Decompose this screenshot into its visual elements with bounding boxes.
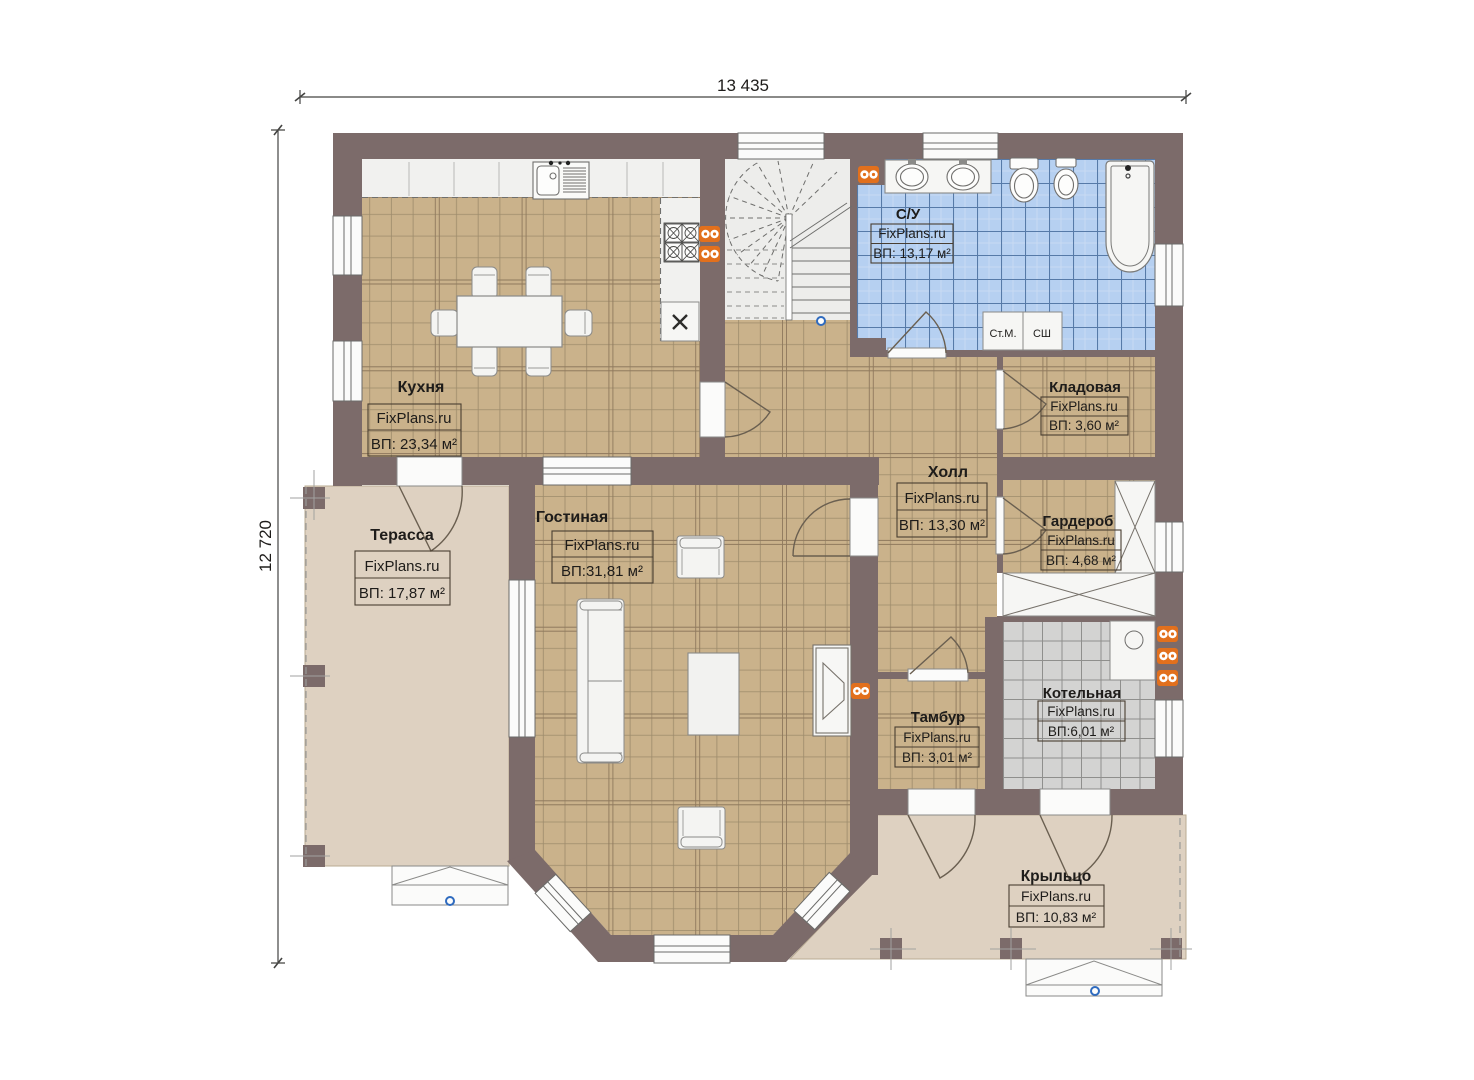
svg-text:ВП: 10,83 м²: ВП: 10,83 м² — [1016, 909, 1097, 925]
svg-text:Котельная: Котельная — [1043, 685, 1122, 702]
svg-text:Терасса: Терасса — [370, 527, 434, 544]
svg-text:FixPlans.ru: FixPlans.ru — [1021, 888, 1091, 904]
svg-text:Гостиная: Гостиная — [536, 509, 608, 526]
svg-text:13 435: 13 435 — [717, 76, 769, 95]
svg-text:12 720: 12 720 — [256, 520, 275, 572]
svg-text:Гардероб: Гардероб — [1043, 513, 1114, 530]
svg-text:Холл: Холл — [928, 464, 968, 481]
svg-text:FixPlans.ru: FixPlans.ru — [364, 558, 439, 575]
svg-text:С/У: С/У — [896, 206, 921, 223]
svg-text:FixPlans.ru: FixPlans.ru — [376, 410, 451, 427]
svg-text:ВП: 13,30 м²: ВП: 13,30 м² — [899, 517, 985, 534]
svg-text:FixPlans.ru: FixPlans.ru — [878, 226, 946, 241]
svg-text:FixPlans.ru: FixPlans.ru — [564, 537, 639, 554]
svg-text:FixPlans.ru: FixPlans.ru — [1050, 399, 1118, 414]
svg-text:ВП:31,81 м²: ВП:31,81 м² — [561, 563, 643, 580]
svg-text:ВП: 4,68 м²: ВП: 4,68 м² — [1046, 553, 1117, 568]
svg-text:ВП: 17,87 м²: ВП: 17,87 м² — [359, 585, 445, 602]
svg-text:СШ: СШ — [1033, 328, 1051, 340]
svg-text:Кладовая: Кладовая — [1049, 379, 1121, 396]
svg-text:ВП: 3,01 м²: ВП: 3,01 м² — [902, 750, 973, 765]
svg-text:ВП:6,01 м²: ВП:6,01 м² — [1048, 724, 1115, 739]
svg-text:FixPlans.ru: FixPlans.ru — [1047, 704, 1115, 719]
svg-text:Тамбур: Тамбур — [911, 709, 965, 726]
svg-text:FixPlans.ru: FixPlans.ru — [903, 730, 971, 745]
svg-text:FixPlans.ru: FixPlans.ru — [904, 490, 979, 507]
svg-text:Кухня: Кухня — [398, 379, 445, 396]
svg-text:ВП: 3,60 м²: ВП: 3,60 м² — [1049, 418, 1120, 433]
svg-text:Ст.М.: Ст.М. — [989, 328, 1016, 340]
svg-text:FixPlans.ru: FixPlans.ru — [1047, 533, 1115, 548]
svg-text:Крыльцо: Крыльцо — [1021, 868, 1092, 885]
svg-text:ВП: 23,34 м²: ВП: 23,34 м² — [371, 436, 457, 453]
svg-text:ВП: 13,17 м²: ВП: 13,17 м² — [873, 246, 951, 261]
